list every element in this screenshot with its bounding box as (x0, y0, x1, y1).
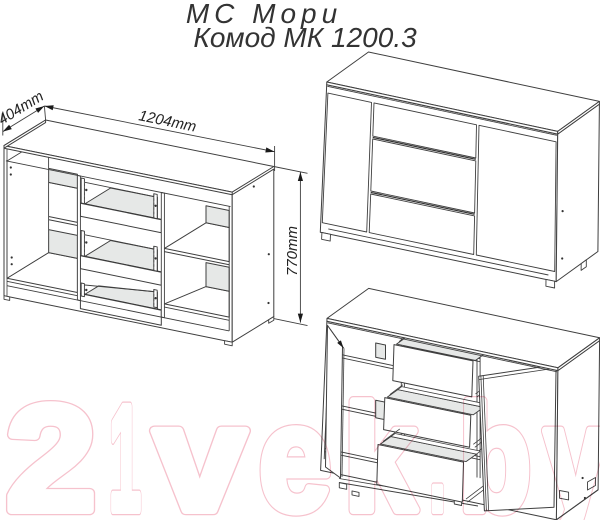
svg-text:2: 2 (6, 374, 96, 520)
svg-text:770mm: 770mm (284, 226, 301, 276)
svg-text:.: . (429, 374, 446, 520)
svg-text:k: k (344, 374, 416, 520)
svg-text:Комод МК 1200.3: Комод МК 1200.3 (193, 22, 417, 53)
svg-text:v: v (154, 374, 246, 520)
svg-text:e: e (259, 374, 331, 520)
svg-text:1: 1 (109, 374, 141, 520)
svg-text:b: b (459, 374, 531, 520)
svg-text:y: y (544, 374, 600, 520)
